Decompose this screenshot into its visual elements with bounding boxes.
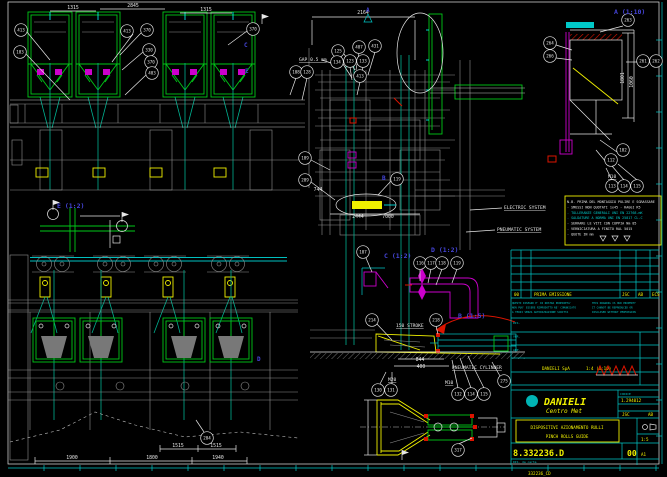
annotation-text: ELECTRIC SYSTEM — [504, 205, 546, 211]
balloon-number: 134 — [333, 60, 341, 65]
rev-left-labels: DIS.VER.APP. — [513, 321, 520, 352]
yellow-pads — [36, 168, 226, 177]
balloon-number: 119 — [393, 177, 401, 182]
green-chute — [429, 14, 442, 134]
balloon-number: 330 — [145, 48, 153, 53]
rev-description: PRIMA EMISSIONE — [534, 292, 572, 297]
balloon-number: 209 — [301, 178, 309, 183]
danieli-logo-icon — [526, 395, 538, 407]
annotation-text: M10 — [608, 174, 617, 180]
footer-code: 332236_CD — [528, 471, 551, 476]
balloon-number: 128 — [303, 70, 311, 75]
balloon-number: 317 — [454, 448, 462, 453]
balloon-number: 103 — [16, 50, 24, 55]
dimension-text: 400 — [417, 364, 426, 370]
section-letter: E — [245, 68, 249, 75]
dimension-text: 1801 — [620, 72, 626, 84]
balloon-number: 413 — [17, 28, 25, 33]
highlight-part — [352, 201, 382, 209]
balloon-number: 275 — [500, 379, 508, 384]
dimension-text: 7000 — [382, 214, 394, 220]
dimension-text: 844 — [416, 357, 425, 363]
balloon-number: 263 — [624, 18, 632, 23]
scale-value: 1:5 — [641, 437, 649, 442]
disclaimer-line: DISCLOSED WITHOUT PERMISSION — [592, 310, 636, 314]
balloon-number: 115 — [480, 392, 488, 397]
view-label: C (1:2) — [384, 252, 411, 260]
balloon-number: 114 — [620, 184, 628, 189]
section-letter: B — [382, 175, 386, 182]
balloon-number: 431 — [371, 44, 379, 49]
pneumatic-cylinder — [430, 334, 516, 352]
balloon-number: 115 — [633, 184, 641, 189]
note-line: - SALDATURE A NORMA UNI EN 25817 CL.C — [567, 216, 643, 220]
format-value: A1 — [641, 452, 647, 457]
section-letter: A — [366, 7, 370, 14]
sig2: AB — [648, 412, 654, 417]
rev-table-label: VER. — [513, 335, 520, 339]
revision-value: 00 — [627, 449, 637, 458]
balloon-number: 370 — [147, 60, 155, 65]
green-hatched-arm — [455, 85, 522, 99]
balloon-number: 109 — [301, 156, 309, 161]
balloon-number: 204 — [203, 436, 211, 441]
balloon-number: 218 — [432, 318, 440, 323]
dimension-text: 1800 — [146, 455, 158, 461]
view-label: A (1:10) — [614, 8, 645, 16]
balloon-number: 116 — [416, 261, 424, 266]
balloon-number: 125 — [334, 49, 342, 54]
revision-table: 00 PRIMA EMISSIONE JSC AB ECS QUESTO DIS… — [511, 250, 660, 465]
annotation-text: M20 — [388, 377, 397, 383]
ground-hatch — [310, 330, 525, 359]
disclaimer-line: NON PUO' ESSERE RIPRODOTTO NE' COMUNICAT… — [512, 306, 576, 310]
drawing-title-line2: PINCH ROLLS GUIDE — [546, 434, 589, 439]
rev-table-label: DIS. — [513, 321, 520, 325]
notes-text: N.B. PRIMA DEL MONTAGGIO PULIRE E SGRASS… — [567, 200, 655, 236]
notes-box: N.B. PRIMA DEL MONTAGGIO PULIRE E SGRASS… — [466, 196, 661, 245]
detail-d — [405, 268, 478, 318]
balloon-number: 130 — [374, 388, 382, 393]
drawing-number: 8.332236.D — [513, 449, 564, 459]
dimension-text: 1315 — [200, 7, 212, 13]
title-block: DANIELI Centro Met CODICE 1.294012 JSC A… — [511, 390, 659, 476]
section-letter: C — [244, 42, 248, 49]
dimension-text: 1900 — [66, 455, 78, 461]
note-line: - QUOTE IN mm — [567, 232, 594, 236]
balloon-number: 370 — [249, 27, 257, 32]
balloon-number: 113 — [608, 184, 616, 189]
hopper-legs — [40, 63, 243, 190]
annotation-text: M10 — [445, 380, 454, 386]
note-line: - SMUSSI NON QUOTATI 1x45 - RAGGI R5 — [567, 205, 641, 209]
annotation-text: PNEUMATIC SYSTEM — [497, 227, 541, 233]
cad-sheet: N.B. PRIMA DEL MONTAGGIO PULIRE E SGRASS… — [0, 0, 667, 477]
dimension-text: 2845 — [127, 3, 139, 9]
balloon-number: 214 — [368, 318, 376, 323]
rev-number: 00 — [514, 292, 520, 297]
balloon-number: 264 — [546, 41, 554, 46]
dimension-text: 744 — [314, 187, 323, 193]
sig1: JSC — [622, 412, 630, 417]
view-label: E (1:2) — [57, 202, 84, 210]
view-label: B (1:5) — [458, 312, 485, 320]
company-division: Centro Met — [546, 408, 583, 415]
funnel-detail — [360, 400, 505, 460]
dimension-text: 1940 — [212, 455, 224, 461]
rev-app: ECS — [652, 292, 660, 297]
rev-by: JSC — [622, 292, 630, 297]
balloon-number: 123 — [346, 59, 354, 64]
balloon-number: 117 — [427, 261, 435, 266]
rev-table-label: APP. — [513, 348, 520, 352]
note-line: N.B. PRIMA DEL MONTAGGIO PULIRE E SGRASS… — [567, 200, 655, 204]
balloon-number: 114 — [467, 392, 475, 397]
balloon-number: 131 — [387, 388, 395, 393]
note-line: - VERNICIATURA A FINITO RAL 5015 — [567, 227, 632, 231]
balloon-number: 118 — [438, 261, 446, 266]
balloon-number: 107 — [359, 250, 367, 255]
balloon-number: 108 — [292, 70, 300, 75]
dimension-text: 1515 — [172, 443, 184, 449]
ref-label: CODICE — [620, 392, 631, 396]
view-side-bottom — [8, 255, 298, 464]
note-line: - TOLLERANZE GENERALI UNI EN 22768-mK — [567, 211, 643, 215]
balloon-number: 133 — [359, 59, 367, 64]
disclaimer-text: QUESTO DISEGNO E' DI NOSTRA PROPRIETA'NO… — [512, 301, 636, 314]
balloon-number: 102 — [619, 148, 627, 153]
balloon-number: 407 — [355, 45, 363, 50]
footer-note: DIS. da carta — [513, 460, 537, 464]
company-name: DANIELI — [543, 397, 586, 408]
disclaimer-line: QUESTO DISEGNO E' DI NOSTRA PROPRIETA' — [512, 301, 571, 305]
annotation-text: 150 STROKE — [396, 323, 424, 329]
balloon-number: 266 — [546, 54, 554, 59]
note-line: - SERRARE LE VITI CON COPPIA Nm 85 — [567, 222, 636, 226]
balloon-number: 262 — [652, 59, 660, 64]
annotation-text: PNEUMATIC CYLINDER — [452, 365, 502, 371]
disclaimer-line: THIS DRAWING IS OUR PROPERTY — [592, 301, 636, 305]
disclaimer-line: IT CANNOT BE REPRODUCED OR — [592, 306, 633, 310]
detail-c — [362, 268, 388, 295]
strip-path — [10, 412, 298, 442]
balloon-number: 112 — [607, 158, 615, 163]
view-front-top — [10, 9, 305, 190]
cad-drawing: N.B. PRIMA DEL MONTAGGIO PULIRE E SGRASS… — [0, 0, 667, 477]
detail-a — [548, 22, 634, 162]
balloon-number: 132 — [454, 392, 462, 397]
support-beam — [10, 100, 305, 127]
dimension-text: 1515 — [210, 443, 222, 449]
section-letter: D — [257, 356, 261, 363]
balloon-number: 403 — [148, 71, 156, 76]
detail-a-boundary — [397, 13, 443, 93]
rev-chk: AB — [638, 292, 644, 297]
balloon-number: 261 — [639, 59, 647, 64]
disclaimer-line: A TERZI SENZA AUTORIZZAZIONE SCRITTA — [512, 310, 569, 314]
dimension-text: 1060 — [629, 76, 635, 88]
balloon-number: 119 — [453, 261, 461, 266]
detail-e — [40, 200, 135, 252]
ref-number: 1.294012 — [621, 398, 642, 403]
company-cell: DANIELI SpA — [542, 366, 570, 371]
balloon-number: 413 — [123, 29, 131, 34]
balloon-number: 370 — [143, 28, 151, 33]
drawing-title-line1: DISPOSITIVI AZIONAMENTO RULLI — [530, 425, 604, 430]
dimension-text: 2444 — [352, 214, 364, 220]
view-label: D (1:2) — [431, 246, 458, 254]
dimension-text: 1315 — [67, 5, 79, 11]
balloon-number: 413 — [356, 74, 364, 79]
projection-symbol-icon — [643, 424, 657, 430]
annotation-text: GAP 0.5 mm — [299, 57, 327, 63]
